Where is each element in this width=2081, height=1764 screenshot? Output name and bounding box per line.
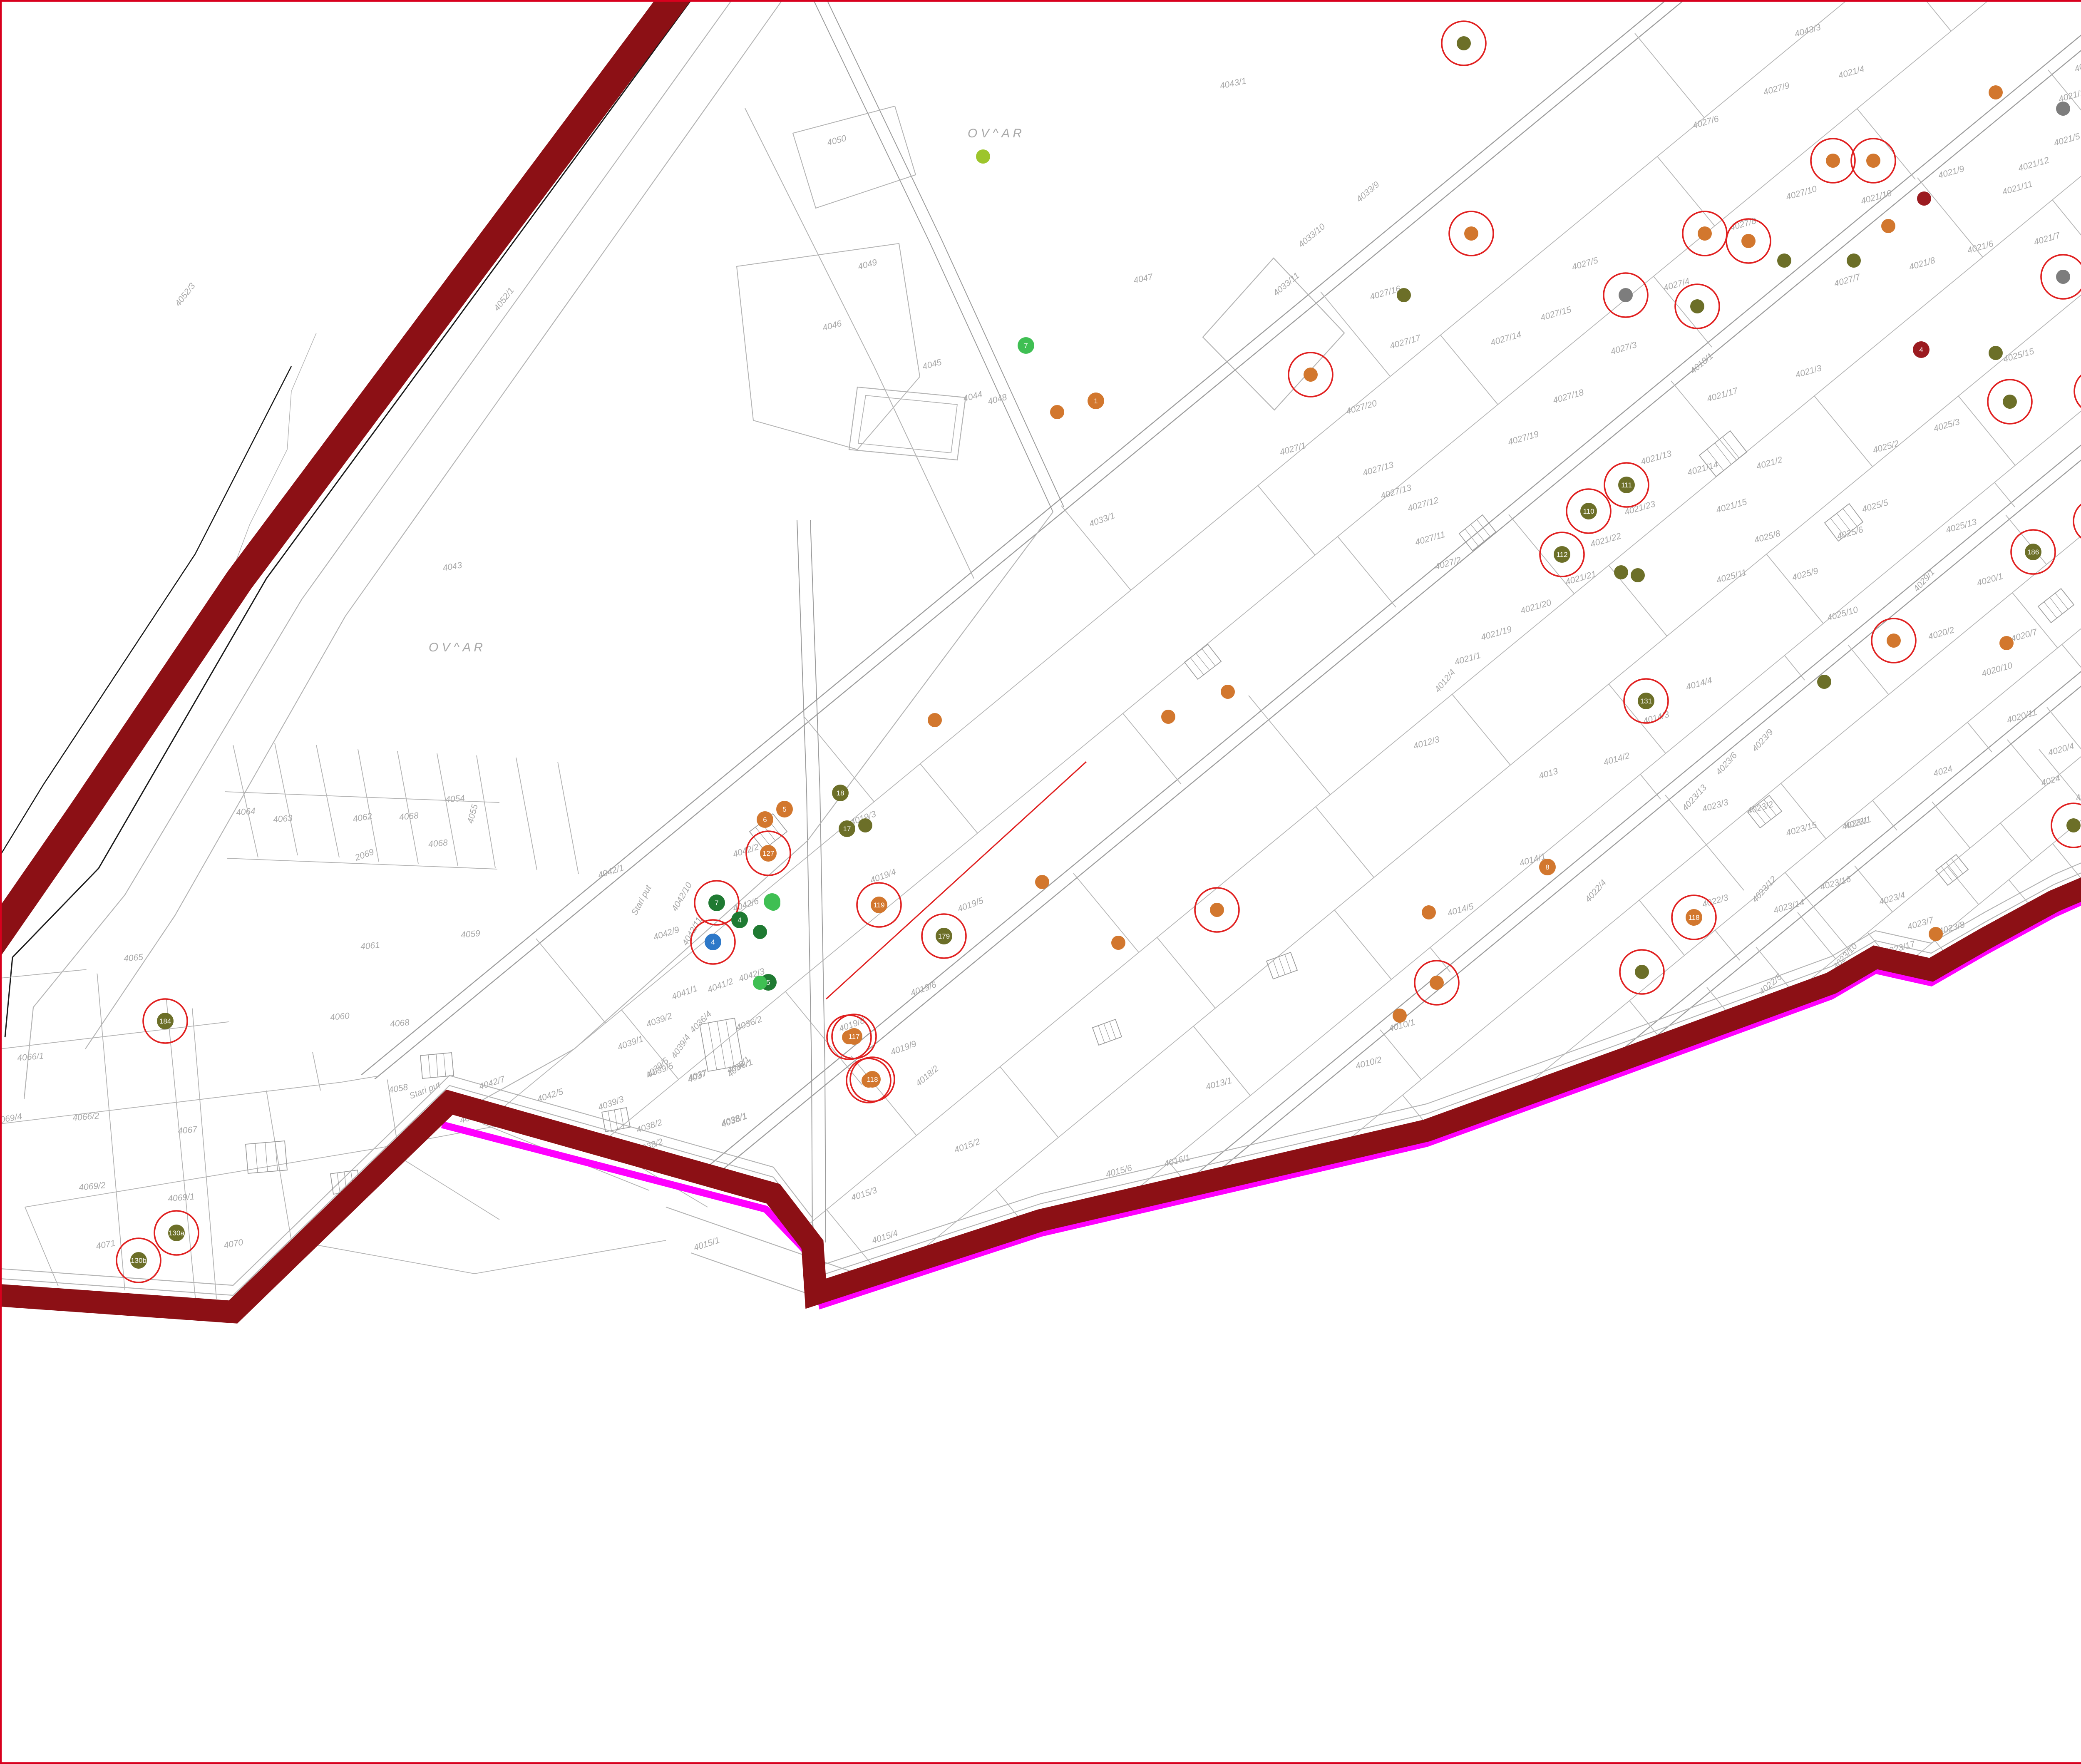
svg-text:4054: 4054 — [445, 793, 465, 805]
svg-text:4068: 4068 — [399, 811, 419, 822]
svg-text:110: 110 — [1583, 507, 1594, 515]
svg-text:O V ^ A R: O V ^ A R — [968, 127, 1022, 140]
svg-text:112: 112 — [1556, 551, 1567, 559]
svg-text:127: 127 — [762, 850, 774, 857]
svg-text:1: 1 — [1094, 397, 1098, 405]
svg-text:4063: 4063 — [273, 813, 293, 825]
svg-text:119: 119 — [873, 901, 884, 909]
svg-text:4: 4 — [738, 916, 741, 924]
svg-text:4059: 4059 — [460, 929, 481, 940]
svg-text:4067: 4067 — [177, 1125, 198, 1136]
svg-text:4: 4 — [1919, 346, 1923, 354]
svg-text:17: 17 — [843, 825, 851, 833]
svg-text:111: 111 — [1621, 481, 1632, 489]
svg-text:4: 4 — [711, 938, 715, 946]
svg-text:130a: 130a — [169, 1229, 184, 1237]
svg-text:7: 7 — [1024, 342, 1028, 350]
svg-text:118: 118 — [1688, 914, 1699, 922]
svg-text:4068: 4068 — [428, 838, 448, 849]
svg-text:4068: 4068 — [390, 1018, 410, 1029]
svg-text:5: 5 — [782, 805, 786, 813]
svg-text:131: 131 — [1640, 697, 1652, 705]
svg-text:179: 179 — [938, 932, 950, 940]
svg-text:4064: 4064 — [236, 806, 256, 817]
svg-text:8: 8 — [1545, 863, 1549, 871]
svg-text:117: 117 — [848, 1033, 859, 1041]
svg-text:7: 7 — [715, 899, 718, 907]
svg-text:4065: 4065 — [123, 952, 144, 964]
svg-text:118: 118 — [867, 1076, 878, 1083]
svg-text:184: 184 — [159, 1017, 171, 1025]
svg-text:130b: 130b — [131, 1257, 147, 1265]
svg-text:186: 186 — [2027, 548, 2039, 556]
svg-text:6: 6 — [763, 816, 767, 824]
svg-text:18: 18 — [837, 789, 844, 797]
svg-text:4060: 4060 — [330, 1011, 350, 1022]
svg-text:O V ^ A R: O V ^ A R — [429, 641, 483, 654]
svg-text:4061: 4061 — [360, 940, 380, 952]
